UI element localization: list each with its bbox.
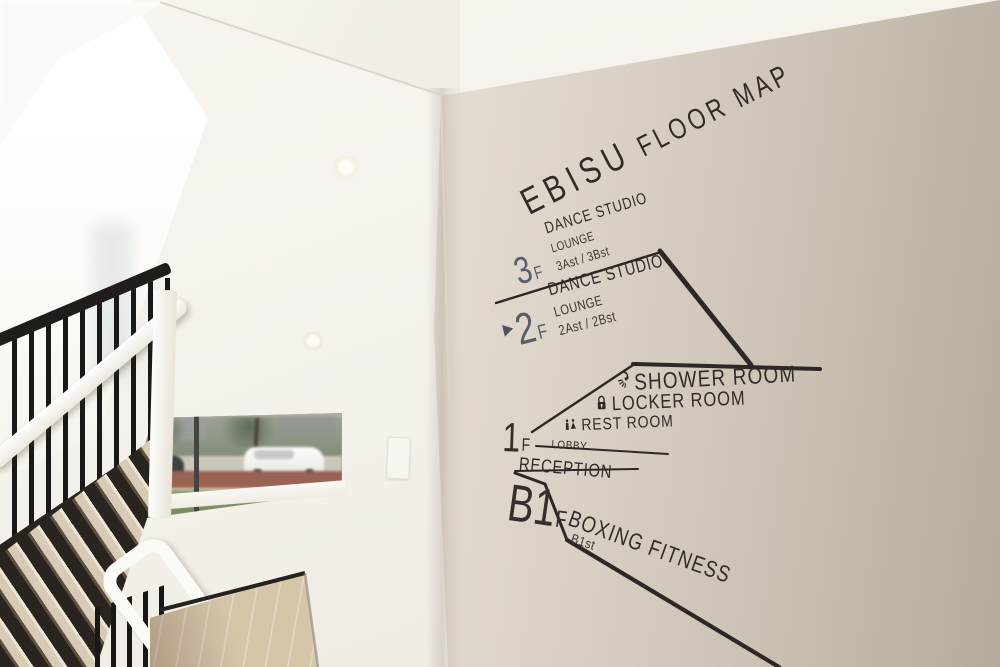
restroom-icon: [564, 417, 578, 436]
lock-icon: [595, 394, 608, 416]
stairwell-photo: EBISU FLOOR MAP 3 F DANCE STUDIO LOUNGE …: [0, 0, 1000, 667]
floor-b1f-number: B1 F: [505, 483, 570, 533]
tree-canopy: [218, 406, 280, 448]
floor-1f-number: 1 F: [502, 421, 531, 455]
wall-corner-shadow: [426, 88, 462, 667]
car-windows: [254, 450, 294, 459]
lobby-label: LOBBY: [551, 435, 588, 455]
floor-number: 1: [502, 421, 521, 454]
floor-suffix: F: [521, 438, 530, 453]
amenity-label: REST ROOM: [581, 412, 674, 435]
light-switch-plate: [386, 437, 410, 480]
room-label: LOBBY: [551, 439, 588, 453]
window-mullion: [194, 408, 199, 526]
recessed-light: [332, 155, 360, 179]
floor-number: B1: [505, 483, 558, 531]
recessed-light: [302, 332, 324, 350]
building: [276, 408, 336, 436]
recessed-light: [252, 256, 274, 271]
window-frame-top: [150, 412, 342, 417]
